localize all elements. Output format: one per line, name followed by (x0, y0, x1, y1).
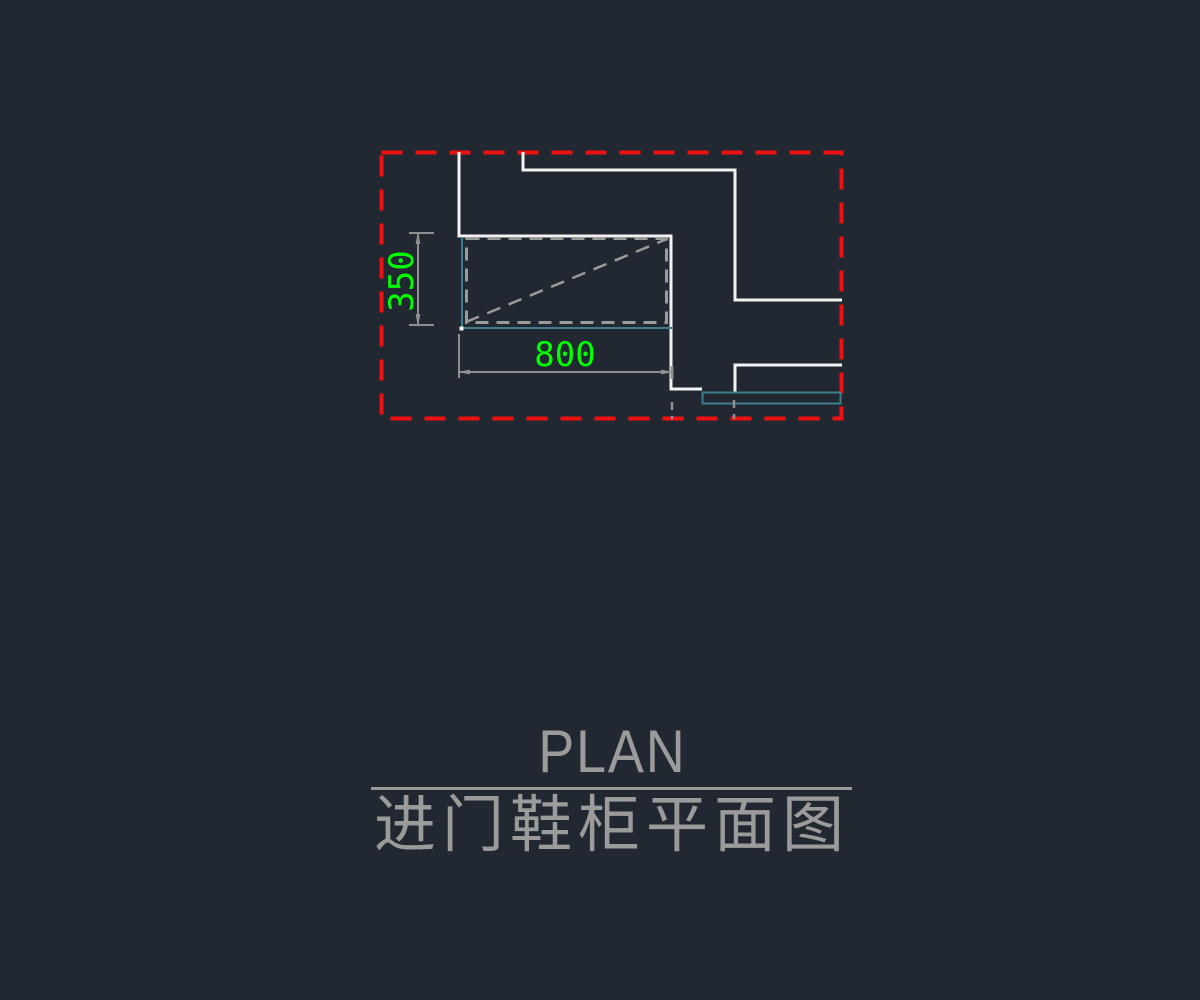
plan-linework (0, 0, 1200, 1000)
cabinet-diagonal-dashed-line (466, 239, 667, 322)
dimension-depth-text: 350 (382, 221, 422, 341)
endpoint-blip (460, 327, 464, 331)
wall-line-lower-right (735, 365, 842, 392)
dimension-width-text: 800 (465, 336, 665, 374)
wall-line-upper-right (523, 152, 842, 300)
door-threshold-strip (703, 393, 841, 404)
cad-viewport[interactable]: 350 800 PLAN 进门鞋柜平面图 (0, 0, 1200, 1000)
crop-boundary-dashed-rect (382, 153, 842, 419)
